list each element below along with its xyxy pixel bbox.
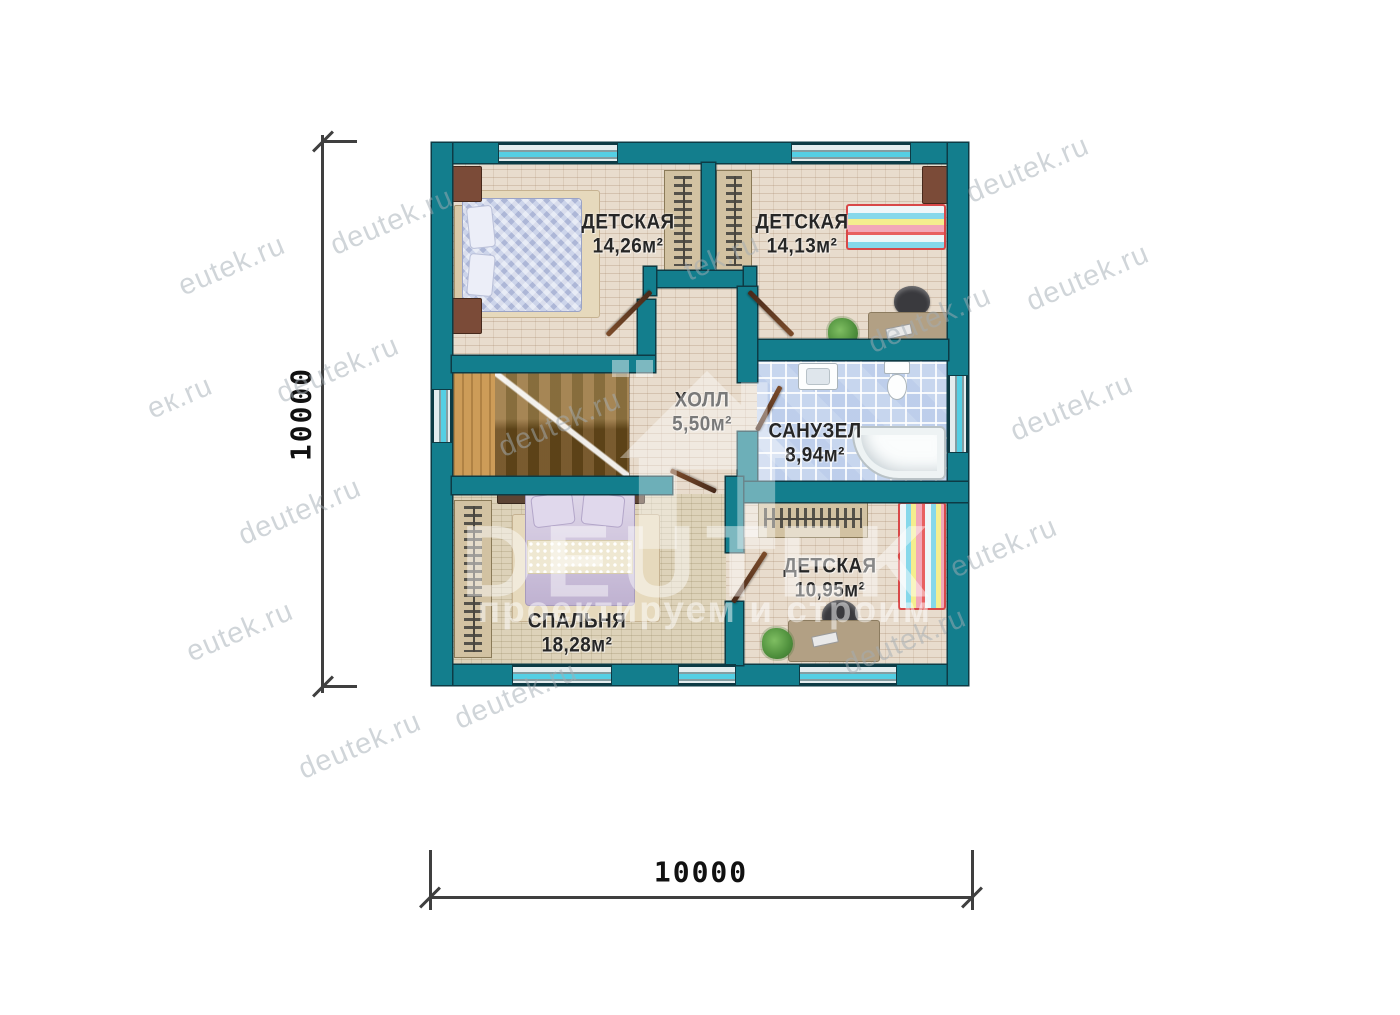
dimension-value-height: 10000 [285, 367, 318, 461]
sink [798, 363, 838, 390]
hanger-rail [674, 176, 692, 266]
dimension-cap [971, 850, 974, 910]
room-label-bedroom: СПАЛЬНЯ 18,28м² [528, 609, 626, 656]
wall-mid-lower [726, 602, 743, 665]
dimension-line-vertical [321, 135, 324, 693]
pillow [580, 492, 625, 528]
wall-hall-header [648, 271, 752, 287]
toilet [884, 361, 910, 374]
room-name: САНУЗЕЛ [768, 419, 861, 443]
dimension-line-horizontal [430, 896, 973, 899]
bed-blanket-band [527, 540, 633, 574]
nightstand [452, 298, 482, 334]
wall-bath-left-upper [738, 287, 757, 382]
dimension-cap [322, 685, 357, 688]
sink-basin [806, 368, 830, 385]
room-area: 18,28м² [528, 633, 626, 657]
wall-divider-top-rooms [702, 163, 715, 276]
room-name: СПАЛЬНЯ [528, 609, 626, 633]
window-glass [441, 390, 446, 442]
watermark-text: deutek.ru [234, 471, 366, 552]
hanger-rail [726, 176, 742, 266]
single-bed [898, 502, 946, 610]
room-name: ХОЛЛ [672, 388, 732, 412]
window-glass [792, 152, 910, 157]
room-label-bathroom: САНУЗЕЛ 8,94м² [768, 419, 861, 466]
watermark-text: deutek.ru [1006, 367, 1138, 448]
watermark-text: deutek.ru [294, 705, 426, 786]
room-name: ДЕТСКАЯ [581, 210, 674, 234]
wardrobe [758, 498, 868, 538]
room-name: ДЕТСКАЯ [783, 554, 876, 578]
room-name: ДЕТСКАЯ [755, 210, 848, 234]
room-label-child3: ДЕТСКАЯ 10,95м² [783, 554, 876, 601]
pillow [466, 205, 496, 249]
wall-bath-top [740, 340, 948, 360]
watermark-text: deutek.ru [962, 129, 1094, 210]
watermark-text: eutek.ru [174, 229, 291, 303]
watermark-text: deutek.ru [1022, 237, 1154, 318]
wall-room1-bottom [452, 356, 655, 372]
window [792, 143, 910, 163]
wardrobe [454, 500, 492, 658]
window-glass [957, 376, 962, 452]
room-area: 14,13м² [755, 234, 848, 258]
floorplan-canvas: ДЕТСКАЯ 14,26м² ДЕТСКАЯ 14,13м² ХОЛЛ 5,5… [0, 0, 1400, 1015]
room-label-child1: ДЕТСКАЯ 14,26м² [581, 210, 674, 257]
nightstand [452, 166, 482, 202]
nightstand [922, 166, 948, 204]
watermark-text: eutek.ru [182, 595, 299, 669]
room-label-child2: ДЕТСКАЯ 14,13м² [755, 210, 848, 257]
pillow [530, 492, 576, 529]
plant [762, 628, 793, 659]
dimension-cap [322, 140, 357, 143]
stairs-flight-divider [495, 372, 629, 476]
watermark-text: ек.ru [142, 370, 217, 427]
single-bed [846, 204, 946, 250]
room-area: 14,26м² [581, 234, 674, 258]
window-glass [513, 674, 611, 679]
wall-bath-left-lower [738, 432, 757, 482]
stairs-landing [453, 372, 495, 476]
hanger-rail [764, 508, 862, 528]
window [948, 376, 968, 452]
dimension-cap [429, 850, 432, 910]
room-area: 8,94м² [768, 443, 861, 467]
pillow [466, 253, 496, 297]
window [499, 143, 617, 163]
wall-mid-upper [726, 477, 743, 552]
window [800, 665, 896, 685]
window-glass [800, 674, 896, 679]
wall-bath-bottom [738, 482, 968, 502]
room-area: 5,50м² [672, 412, 732, 436]
window [513, 665, 611, 685]
window [432, 390, 452, 442]
dimension-value-width: 10000 [654, 856, 748, 889]
window-glass [679, 674, 735, 679]
window-glass [499, 152, 617, 157]
window [679, 665, 735, 685]
toilet-bowl [887, 374, 907, 400]
room-label-hall: ХОЛЛ 5,50м² [672, 388, 732, 435]
staircase [452, 371, 630, 477]
wall-stairs-bottom [452, 477, 672, 494]
room-area: 10,95м² [783, 578, 876, 602]
hanger-rail [464, 506, 482, 652]
wardrobe [716, 170, 752, 272]
